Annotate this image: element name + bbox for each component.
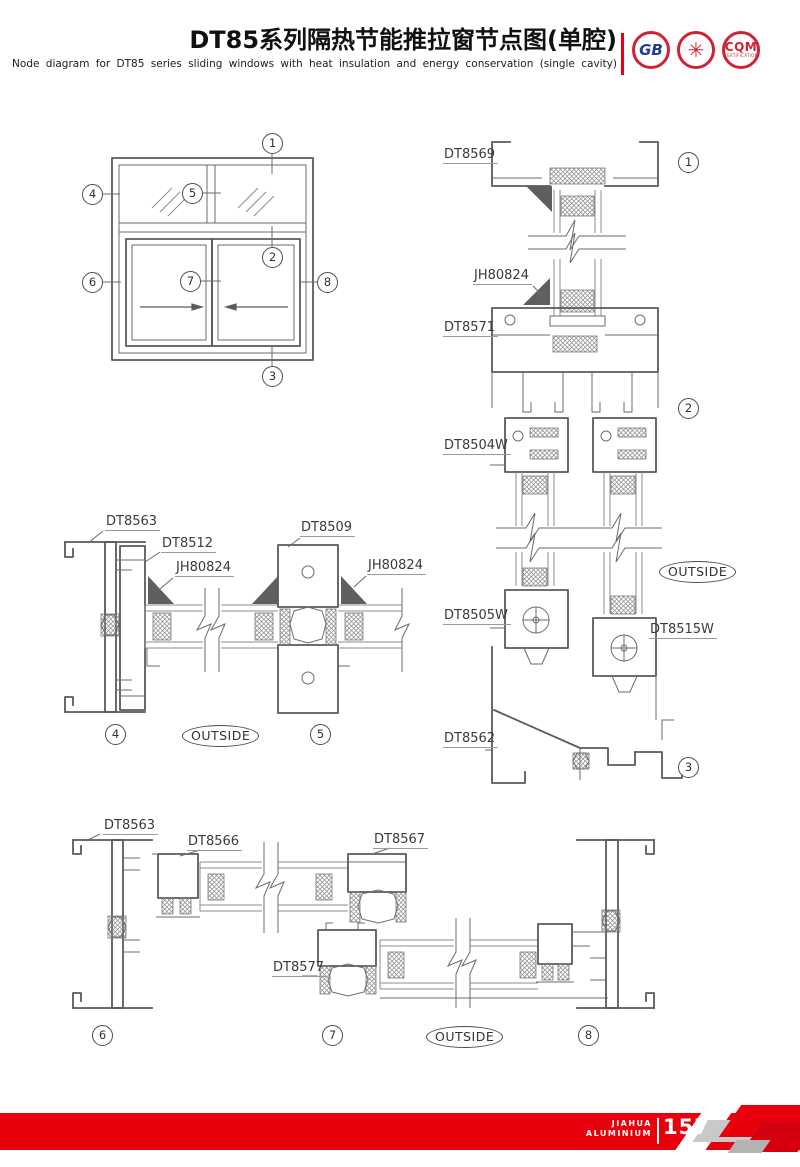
mid-horizontal-section-drawing xyxy=(50,500,430,755)
cqm-logo-subtext: CERTIFICATION xyxy=(724,53,758,59)
gb-cert-logo: GB xyxy=(632,31,670,69)
vertical-section-drawing xyxy=(430,120,800,790)
part-label-dt8563-mid: DT8563 xyxy=(105,514,160,531)
callout-section-5: 5 xyxy=(310,724,331,745)
cqm-logo-text: CQM xyxy=(725,41,757,53)
part-label-dt8512: DT8512 xyxy=(161,536,216,553)
cqm-cert-logo: CQM CERTIFICATION xyxy=(722,31,760,69)
part-label-dt8509: DT8509 xyxy=(300,520,355,537)
callout-section-6: 6 xyxy=(92,1025,113,1046)
callout-4: 4 xyxy=(82,184,103,205)
part-label-dt8566: DT8566 xyxy=(187,834,242,851)
callout-section-4: 4 xyxy=(105,724,126,745)
callout-section-8: 8 xyxy=(578,1025,599,1046)
outside-badge-bottom: OUTSIDE xyxy=(426,1026,503,1048)
mid-horizontal-section-diagram: DT8563 DT8512 JH80824 DT8509 JH80824 4 O… xyxy=(50,500,430,755)
footer-brand-line2: ALUMINIUM xyxy=(540,1129,652,1139)
part-label-jh80824: JH80824 xyxy=(473,268,532,285)
page-number: 157 xyxy=(663,1115,710,1139)
part-label-dt8571: DT8571 xyxy=(443,320,498,337)
footer-divider xyxy=(657,1118,659,1144)
callout-6: 6 xyxy=(82,272,103,293)
part-label-dt8563-bottom: DT8563 xyxy=(103,818,158,835)
callout-7: 7 xyxy=(180,271,201,292)
callout-2: 2 xyxy=(262,247,283,268)
callout-3: 3 xyxy=(262,366,283,387)
vertical-section-diagram: DT8569 JH80824 DT8571 DT8504W DT8505W DT… xyxy=(430,120,800,790)
part-label-jh80824-right: JH80824 xyxy=(367,558,426,575)
outside-badge-vertical: OUTSIDE xyxy=(659,561,736,583)
flower-icon: ✳ xyxy=(688,38,705,62)
part-label-dt8569: DT8569 xyxy=(443,147,498,164)
gb-logo-text: GB xyxy=(639,41,663,59)
callout-5: 5 xyxy=(182,183,203,204)
bottom-horizontal-section-diagram: DT8563 DT8566 DT8567 DT8577 6 7 OUTSIDE … xyxy=(50,790,670,1060)
callout-1: 1 xyxy=(262,133,283,154)
part-label-dt8577: DT8577 xyxy=(272,960,327,977)
callout-section-2: 2 xyxy=(678,398,699,419)
seal-cert-logo: ✳ xyxy=(677,31,715,69)
header: DT85系列隔热节能推拉窗节点图(单腔) Node diagram for DT… xyxy=(0,27,617,70)
outside-badge-mid: OUTSIDE xyxy=(182,725,259,747)
part-label-dt8562: DT8562 xyxy=(443,731,498,748)
elevation-drawing xyxy=(60,120,380,400)
part-label-jh80824-left: JH80824 xyxy=(175,560,234,577)
part-label-dt8567: DT8567 xyxy=(373,832,428,849)
header-red-divider xyxy=(621,33,624,75)
part-label-dt8504w: DT8504W xyxy=(443,438,511,455)
part-label-dt8515w: DT8515W xyxy=(649,622,717,639)
callout-8: 8 xyxy=(317,272,338,293)
part-label-dt8505w: DT8505W xyxy=(443,608,511,625)
callout-section-1: 1 xyxy=(678,152,699,173)
footer-brand-line1: JIAHUA xyxy=(540,1119,652,1129)
callout-section-3: 3 xyxy=(678,757,699,778)
catalog-page: DT85系列隔热节能推拉窗节点图(单腔) Node diagram for DT… xyxy=(0,0,800,1167)
window-elevation-diagram: 1 4 5 2 6 7 8 3 xyxy=(60,120,380,400)
footer-brand: JIAHUA ALUMINIUM xyxy=(540,1119,652,1140)
page-title: DT85系列隔热节能推拉窗节点图(单腔) xyxy=(0,27,617,55)
callout-section-7: 7 xyxy=(322,1025,343,1046)
page-subtitle: Node diagram for DT85 series sliding win… xyxy=(0,58,617,70)
